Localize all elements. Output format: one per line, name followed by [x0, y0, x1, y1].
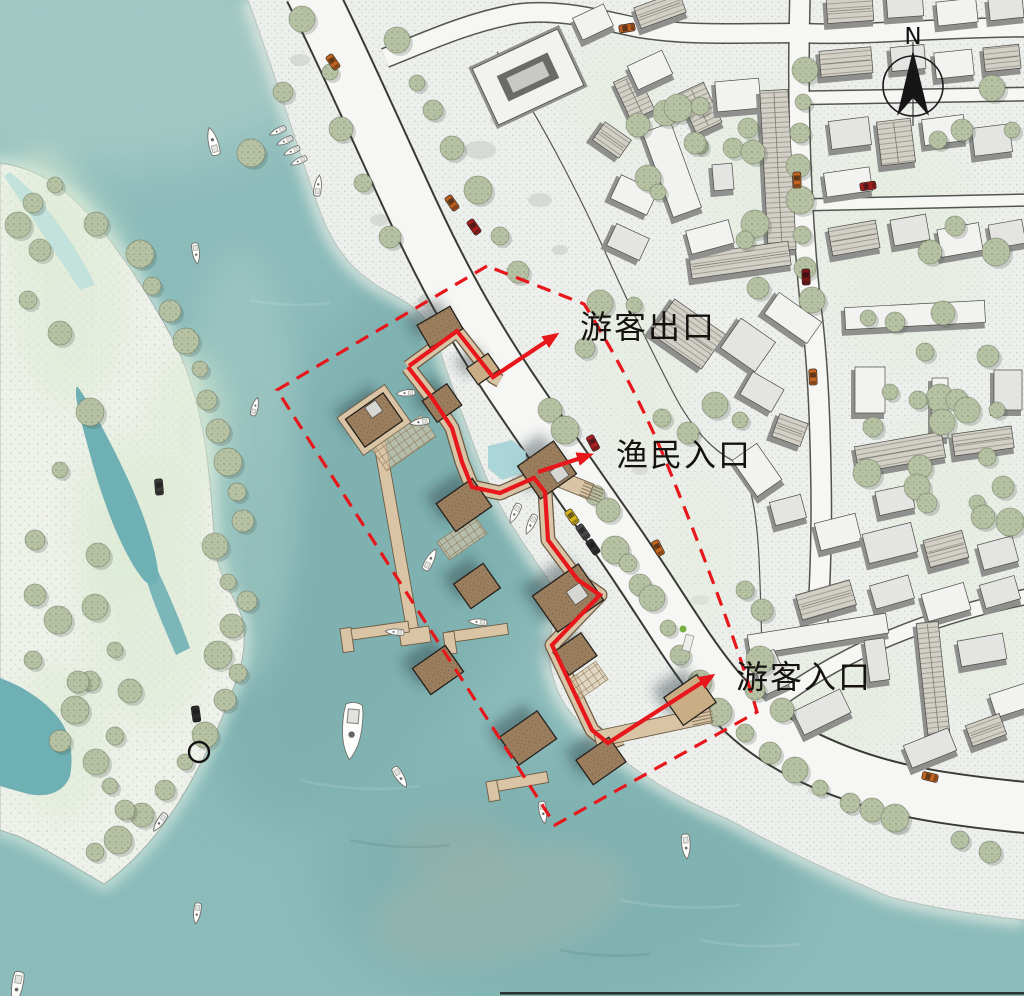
building [872, 118, 916, 172]
building [984, 0, 1024, 27]
car-icon [802, 269, 811, 285]
label-tourist-exit: 游客出口 [580, 308, 716, 346]
label-fisherman-entrance: 渔民入口 [616, 436, 752, 474]
building [932, 0, 979, 32]
building [882, 0, 924, 24]
car-icon [793, 172, 802, 188]
building [824, 117, 872, 156]
label-tourist-entrance: 游客入口 [736, 658, 872, 696]
building [979, 44, 1022, 78]
building [851, 367, 885, 419]
building [708, 163, 735, 197]
building [822, 0, 874, 30]
site-plan-stage: 游客出口 渔民入口 游客入口 N [0, 0, 1024, 996]
compass-north-label: N [904, 24, 921, 50]
car-icon [809, 369, 818, 385]
building [711, 78, 762, 118]
car-icon [154, 479, 163, 496]
site-plan-image: 游客出口 渔民入口 游客入口 N [0, 0, 1024, 996]
building [815, 47, 874, 84]
shrub-dot [680, 626, 687, 633]
